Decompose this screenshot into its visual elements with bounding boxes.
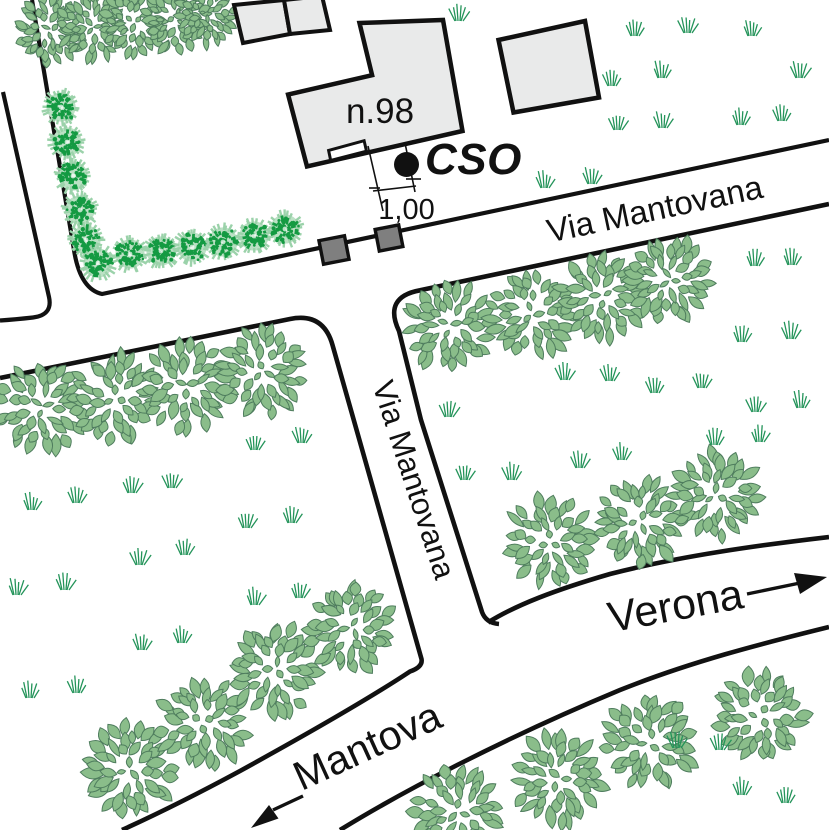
svg-text:Via Mantovana: Via Mantovana bbox=[365, 376, 462, 584]
svg-text:Via Mantovana: Via Mantovana bbox=[543, 168, 766, 250]
svg-text:1,00: 1,00 bbox=[378, 194, 434, 226]
svg-text:CSO: CSO bbox=[425, 135, 522, 184]
svg-text:Verona: Verona bbox=[604, 570, 747, 642]
svg-text:n.98: n.98 bbox=[346, 92, 414, 131]
